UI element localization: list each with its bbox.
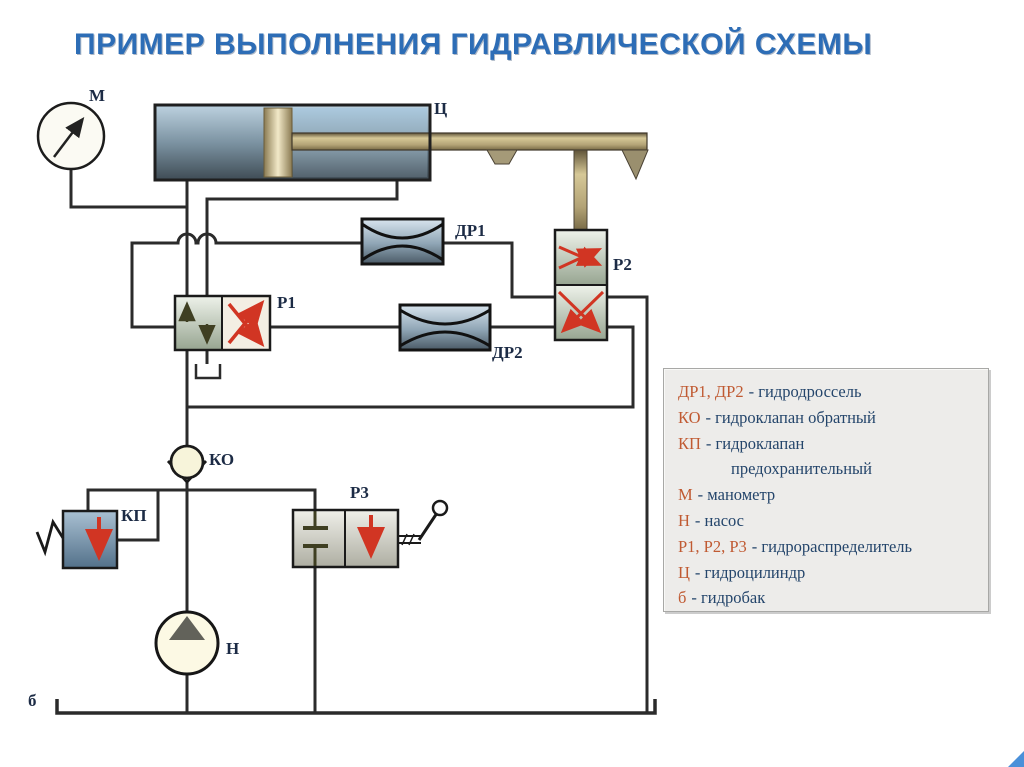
legend-entry: предохранительный — [678, 456, 982, 482]
throttle-dr1-symbol — [362, 219, 443, 264]
legend-text: - гидродроссель — [749, 382, 862, 401]
legend-text: - манометр — [698, 485, 775, 504]
label-pump: Н — [226, 639, 239, 658]
legend-box: ДР1, ДР2- гидродроссель КО- гидроклапан … — [663, 368, 989, 612]
directional-valve-p1-symbol — [175, 296, 270, 350]
check-valve-ko-symbol — [168, 446, 206, 482]
label-throttle1: ДР1 — [455, 221, 486, 240]
legend-text: - гидроклапан — [706, 434, 804, 453]
legend-key: Р1, Р2, Р3 — [678, 537, 747, 556]
directional-valve-p3-symbol — [293, 501, 447, 567]
legend-entry: КО- гидроклапан обратный — [678, 405, 982, 431]
label-throttle2: ДР2 — [492, 343, 523, 362]
lever-knob — [433, 501, 447, 515]
legend-key: М — [678, 485, 693, 504]
valve-actuator-rod — [574, 150, 587, 231]
label-valve1: Р1 — [277, 293, 296, 312]
manual-lever — [398, 501, 447, 545]
pump-symbol — [156, 612, 218, 674]
legend-text: предохранительный — [731, 459, 872, 478]
label-check-valve: КО — [209, 450, 234, 469]
platform-lug — [487, 150, 517, 164]
pipe-p2-to-tank — [607, 297, 647, 713]
legend-entry: Н- насос — [678, 508, 982, 534]
relief-valve-kp-symbol — [37, 511, 117, 568]
legend-key: б — [678, 588, 686, 607]
legend-key: ДР1, ДР2 — [678, 382, 744, 401]
legend-entry: М- манометр — [678, 482, 982, 508]
legend-key: КО — [678, 408, 701, 427]
legend-key: Ц — [678, 563, 690, 582]
spring — [37, 522, 63, 552]
label-gauge: М — [89, 86, 105, 105]
legend-text: - насос — [695, 511, 744, 530]
hydraulic-cylinder-symbol — [155, 105, 648, 231]
legend-text: - гидрораспределитель — [752, 537, 912, 556]
platform-end-pointer — [622, 150, 648, 179]
legend-text: - гидроцилиндр — [695, 563, 805, 582]
legend-entry: б- гидробак — [678, 585, 982, 611]
pipe-dr1-to-p2 — [443, 243, 555, 297]
throttle-dr2-symbol — [400, 305, 490, 350]
legend-entry: КП- гидроклапан — [678, 431, 982, 457]
cylinder-piston — [264, 108, 292, 177]
label-tank: б — [28, 691, 37, 710]
tank-line — [57, 699, 655, 713]
legend-key: КП — [678, 434, 701, 453]
slide-canvas: { "title": "ПРИМЕР ВЫПОЛНЕНИЯ ГИДРАВЛИЧЕ… — [0, 0, 1024, 767]
directional-valve-p2-symbol — [555, 230, 607, 340]
label-cylinder: Ц — [434, 99, 447, 118]
legend-entry: Р1, Р2, Р3- гидрораспределитель — [678, 534, 982, 560]
legend-entry: Ц- гидроцилиндр — [678, 560, 982, 586]
label-valve3: Р3 — [350, 483, 369, 502]
legend-text: - гидробак — [691, 588, 765, 607]
legend-key: Н — [678, 511, 690, 530]
legend-entry: ДР1, ДР2- гидродроссель — [678, 379, 982, 405]
pressure-gauge-symbol — [38, 103, 104, 169]
label-relief-valve: КП — [121, 506, 147, 525]
piston-rod — [292, 133, 647, 150]
legend-text: - гидроклапан обратный — [706, 408, 876, 427]
corner-decoration — [1008, 751, 1024, 767]
tank-bracket — [196, 364, 220, 378]
label-valve2: Р2 — [613, 255, 632, 274]
